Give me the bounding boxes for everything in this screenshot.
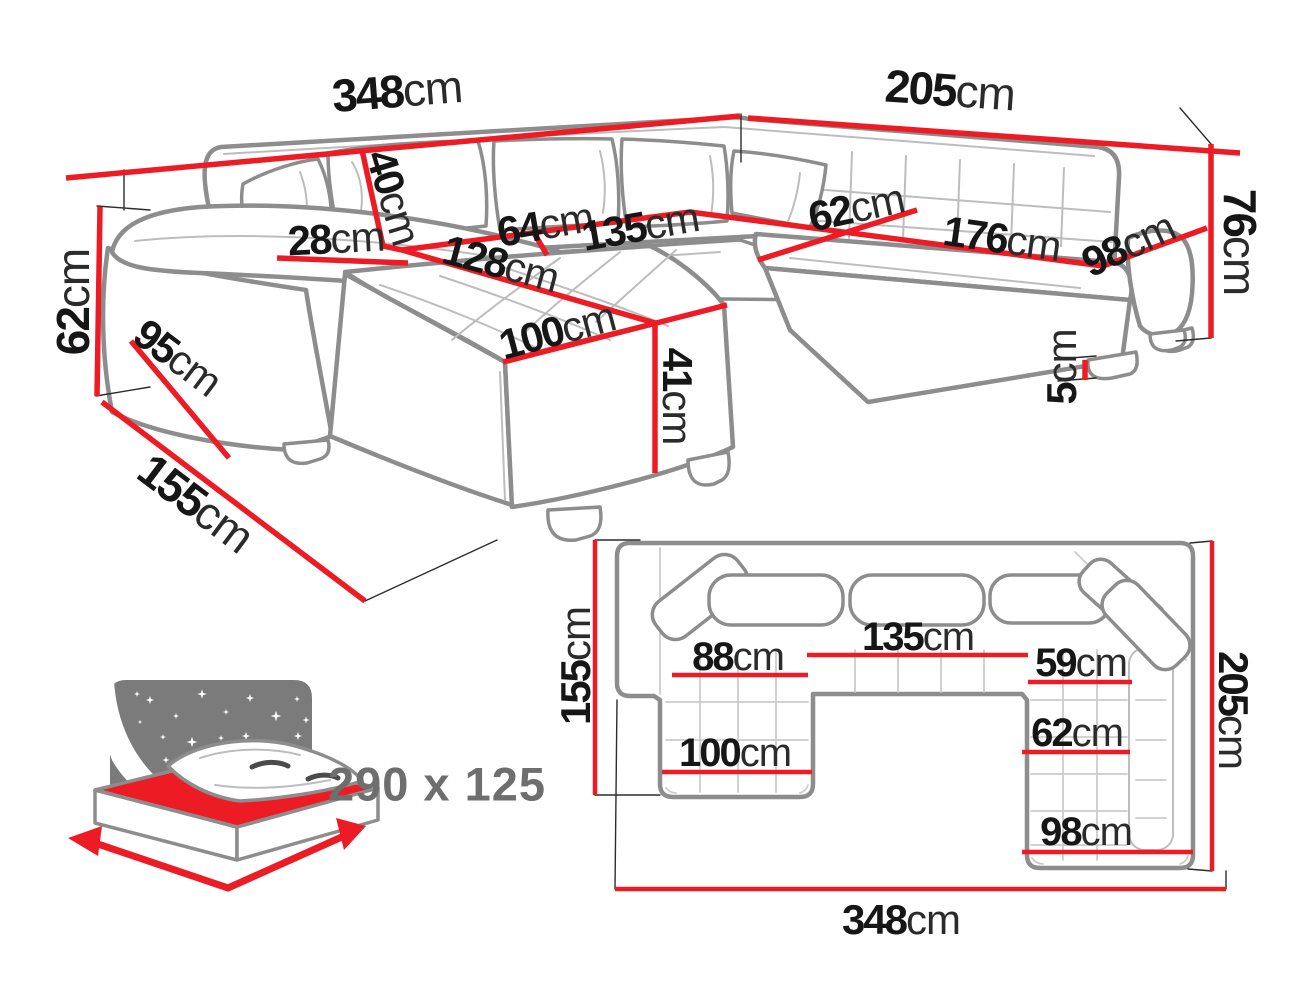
plan-label-59: 59cm xyxy=(1035,641,1127,685)
sofa-leg xyxy=(284,440,329,463)
plan-label-155: 155cm xyxy=(552,607,599,725)
perspective-view: 348cm 205cm 76cm 62cm 28cm 40cm 64cm 135… xyxy=(47,60,1266,601)
sofa-leg xyxy=(548,507,601,540)
dim-label-62-left: 62cm xyxy=(47,249,99,356)
dim-label-155-depth: 155cm xyxy=(128,443,263,563)
plan-label-205: 205cm xyxy=(1211,651,1258,769)
dim-label-205-top: 205cm xyxy=(883,60,1016,121)
dim-label-41-height: 41cm xyxy=(655,348,702,445)
dim-label-5-leg: 5cm xyxy=(1038,329,1085,404)
plan-label-88: 88cm xyxy=(692,635,784,679)
dim-label-348-top: 348cm xyxy=(330,60,464,122)
sleeping-function-icon: 290 x 125 xyxy=(68,680,546,888)
plan-label-135: 135cm xyxy=(862,615,974,659)
plan-label-100: 100cm xyxy=(679,731,791,775)
dim-label-28-armrest: 28cm xyxy=(286,212,385,264)
dim-label-76-right: 76cm xyxy=(1214,189,1266,296)
sofa-dimensions-diagram: 348cm 205cm 76cm 62cm 28cm 40cm 64cm 135… xyxy=(0,0,1313,985)
plan-label-62: 62cm xyxy=(1031,711,1123,755)
pillow-icon xyxy=(709,575,843,625)
plan-label-348: 348cm xyxy=(842,896,960,943)
plan-view: 155cm 205cm 88cm 135cm 59cm 100cm 62cm 9… xyxy=(552,540,1258,943)
sleeping-size-label: 290 x 125 xyxy=(328,758,546,811)
plan-label-98: 98cm xyxy=(1040,810,1132,854)
diagram-canvas: 348cm 205cm 76cm 62cm 28cm 40cm 64cm 135… xyxy=(0,0,1313,985)
